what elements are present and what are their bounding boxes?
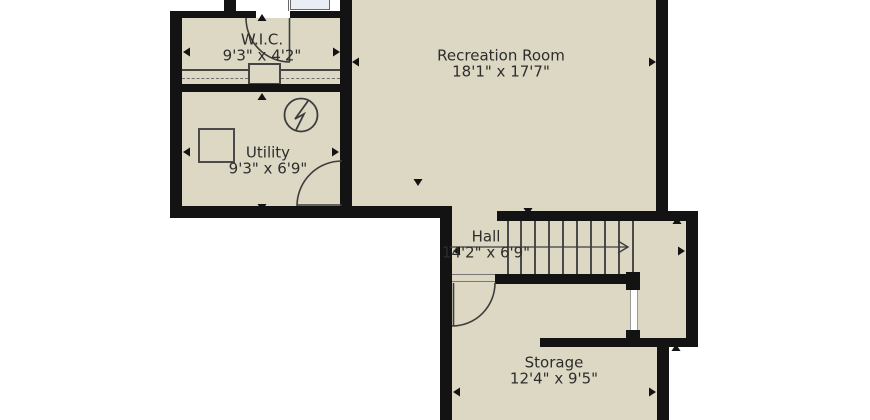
wall-top-stub: [224, 0, 236, 11]
understair-thin-wall: [630, 284, 638, 331]
stair-tread: [590, 221, 592, 274]
room-label-storage: Storage 12'4" x 9'5": [510, 356, 598, 387]
stair-tread: [604, 221, 606, 274]
wall-stair-bottom: [495, 274, 638, 284]
storage-door-jamb-top: [452, 274, 497, 275]
wall-hall-right: [686, 211, 698, 347]
wall-storage-right: [657, 340, 669, 420]
floor-plan: W.I.C. 9'3" x 4'2" Utility 9'3" x 6'9" R…: [0, 0, 870, 420]
wall-stair-end-block: [626, 272, 640, 290]
closet-shelf-line-right: [281, 69, 340, 71]
wall-recreation-right: [656, 0, 668, 211]
floor-recreation: [352, 0, 656, 211]
wall-wic-recreation: [340, 0, 352, 206]
stair-tread: [562, 221, 564, 274]
wall-bottom-upper-block: [170, 206, 452, 218]
room-label-hall: Hall 14'2" x 6'9": [442, 230, 530, 261]
room-dimensions: 12'4" x 9'5": [510, 371, 598, 387]
closet-builtin-box: [248, 63, 281, 85]
wall-storage-top: [540, 338, 698, 347]
closet-rod-dashed-left: [182, 78, 248, 79]
stair-tread: [576, 221, 578, 274]
wall-wic-utility: [182, 84, 340, 92]
wall-outer-left: [170, 11, 182, 218]
vanity-counter: [290, 0, 330, 10]
stair-tread: [632, 221, 634, 274]
room-dimensions: 18'1" x 17'7": [437, 64, 565, 80]
room-dimensions: 9'3" x 6'9": [229, 161, 308, 177]
stair-tread: [534, 221, 536, 274]
room-label-wic: W.I.C. 9'3" x 4'2": [223, 33, 302, 64]
bathroom-divider-line: [288, 0, 289, 11]
room-dimensions: 14'2" x 6'9": [442, 245, 530, 261]
wall-hall-top: [497, 211, 698, 221]
storage-door-jamb-bottom: [452, 281, 497, 282]
stair-tread: [548, 221, 550, 274]
closet-shelf-line-left: [182, 69, 248, 71]
stair-tread: [618, 221, 620, 274]
closet-rod-dashed-right: [281, 78, 340, 79]
room-label-utility: Utility 9'3" x 6'9": [229, 146, 308, 177]
room-dimensions: 9'3" x 4'2": [223, 48, 302, 64]
wall-top-left: [170, 11, 256, 18]
room-label-recreation: Recreation Room 18'1" x 17'7": [437, 49, 565, 80]
